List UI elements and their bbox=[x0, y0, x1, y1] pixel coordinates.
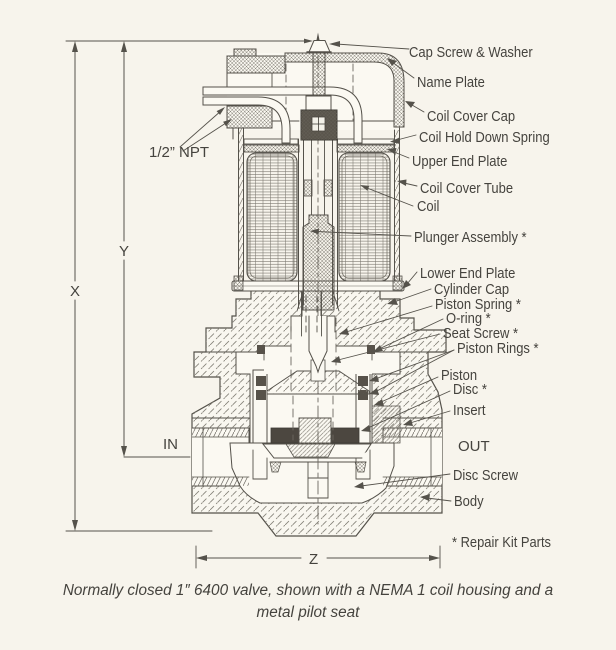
svg-text:metal pilot seat: metal pilot seat bbox=[257, 604, 361, 621]
svg-text:Upper End Plate: Upper End Plate bbox=[412, 154, 507, 170]
svg-text:Piston Rings *: Piston Rings * bbox=[457, 341, 539, 357]
svg-text:* Repair Kit Parts: * Repair Kit Parts bbox=[452, 535, 551, 551]
svg-text:Disc Screw: Disc Screw bbox=[453, 468, 518, 484]
svg-text:Body: Body bbox=[454, 494, 484, 510]
svg-text:Coil: Coil bbox=[417, 199, 439, 215]
svg-text:Lower End Plate: Lower End Plate bbox=[420, 266, 515, 282]
svg-text:Coil Cover Tube: Coil Cover Tube bbox=[420, 181, 513, 197]
svg-text:Coil Cover Cap: Coil Cover Cap bbox=[427, 109, 515, 125]
svg-text:Cap Screw & Washer: Cap Screw & Washer bbox=[409, 45, 533, 61]
svg-text:Coil Hold Down Spring: Coil Hold Down Spring bbox=[419, 130, 550, 146]
svg-text:Seat Screw *: Seat Screw * bbox=[443, 326, 518, 342]
svg-text:IN: IN bbox=[163, 436, 178, 453]
svg-text:Normally closed 1″ 6400 valve,: Normally closed 1″ 6400 valve, shown wit… bbox=[63, 582, 553, 599]
svg-text:O-ring *: O-ring * bbox=[446, 311, 491, 327]
svg-text:1/2” NPT: 1/2” NPT bbox=[149, 144, 209, 161]
svg-text:Y: Y bbox=[119, 243, 129, 260]
svg-text:Cylinder Cap: Cylinder Cap bbox=[434, 282, 509, 298]
svg-text:Disc *: Disc * bbox=[453, 382, 487, 398]
svg-text:Z: Z bbox=[309, 551, 318, 568]
svg-text:Name Plate: Name Plate bbox=[417, 75, 485, 91]
svg-text:OUT: OUT bbox=[458, 438, 490, 455]
svg-text:Insert: Insert bbox=[453, 403, 486, 419]
svg-text:Plunger Assembly *: Plunger Assembly * bbox=[414, 230, 527, 246]
svg-text:X: X bbox=[70, 283, 80, 300]
